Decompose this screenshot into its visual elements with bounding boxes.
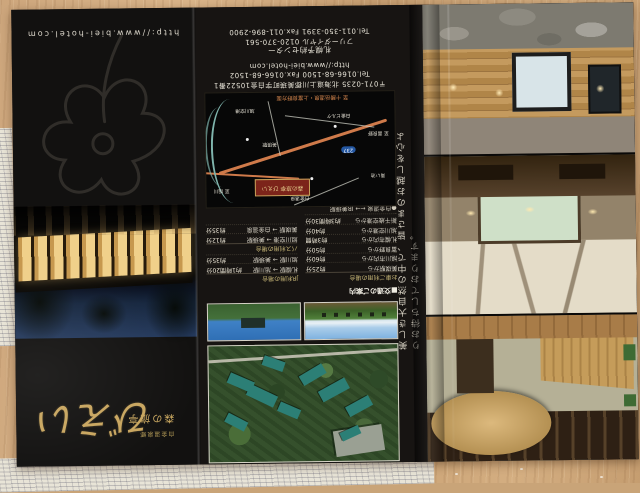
map-dot bbox=[334, 125, 337, 128]
bath-window-small bbox=[588, 64, 622, 113]
route-237-badge: 237 bbox=[341, 146, 356, 153]
photo-field-landscape bbox=[304, 301, 398, 340]
map-label: 白金ビルケ bbox=[327, 112, 351, 119]
table-silhouette bbox=[458, 165, 513, 180]
address-line: 〒071-0235 北海道上川郡美瑛町字白金10522番1 bbox=[202, 78, 397, 90]
brochure-info-panel: 美しき大自然の中で、皆さまのお越しを心よりお待ちしております。 bbox=[193, 5, 428, 465]
map-label: 至 旭川 bbox=[213, 188, 229, 195]
lobby-ceiling bbox=[425, 240, 637, 315]
bath-window bbox=[512, 52, 571, 112]
access-row: 旭川空港 → 美瑛駅約12分 bbox=[206, 233, 298, 244]
access-row: 札幌駅 → 旭川駅約1時間20分 bbox=[206, 263, 298, 274]
map-label: 美瑛駅 bbox=[262, 141, 276, 148]
route-label: 旭川駅 → 美瑛駅 bbox=[253, 254, 298, 263]
table-silhouette bbox=[559, 164, 606, 179]
aerial-roof bbox=[224, 413, 248, 432]
dust-speck bbox=[455, 473, 458, 475]
window-greenery bbox=[623, 344, 635, 360]
map-dot bbox=[246, 138, 249, 141]
duration-value: 約25分 bbox=[306, 263, 326, 272]
access-row: 新千歳空港から約3時間30分 bbox=[305, 214, 397, 225]
route-label: 富良野から bbox=[367, 243, 397, 252]
photo-guestroom bbox=[426, 314, 639, 462]
access-row: 旭川駅 → 美瑛駅約35分 bbox=[206, 253, 298, 264]
map-label: 至 富良野 bbox=[368, 130, 389, 137]
contact-block: 〒071-0235 北海道上川郡美瑛町字白金10522番1 Tel.0166-6… bbox=[201, 25, 397, 89]
route-label: 旭川空港から bbox=[361, 224, 397, 233]
aerial-roof bbox=[227, 372, 255, 392]
dust-speck bbox=[520, 468, 523, 470]
small-photo-row bbox=[207, 301, 398, 341]
building-silhouette bbox=[241, 318, 265, 328]
access-section: ■交通のご案内 お車ご利用の場合 美瑛駅から約25分 旭川市内から約60分 富良… bbox=[206, 209, 398, 297]
photo-onsen-bath bbox=[422, 2, 635, 155]
map-label: 白金温泉 bbox=[290, 195, 309, 202]
access-map: 237 森の旅亭 びえい 白金温泉 青い池 白金ビルケ 美瑛駅 至 旭川 至 富… bbox=[204, 90, 396, 208]
wall-lamp bbox=[449, 83, 457, 91]
access-row: 美瑛駅から約25分 bbox=[306, 262, 398, 273]
jr-column-header: JR利用の場合 bbox=[206, 272, 298, 284]
duration-value: 約50分 bbox=[306, 244, 326, 253]
duration-value: 約3時間 bbox=[306, 235, 328, 244]
duration-value: 約35分 bbox=[206, 225, 226, 234]
access-transit-column: JR利用の場合 札幌駅 → 旭川駅約1時間20分 旭川駅 → 美瑛駅約35分 バ… bbox=[206, 215, 298, 285]
access-title: ■交通のご案内 bbox=[207, 285, 398, 297]
duration-value: 約35分 bbox=[206, 255, 226, 264]
route-label: 美瑛駅 → 白金温泉 bbox=[247, 224, 298, 233]
dust-speck bbox=[600, 476, 603, 478]
access-row: 札幌市内から約3時間 bbox=[305, 233, 397, 244]
duration-value: 約3時間30分 bbox=[305, 215, 341, 224]
wood-floor bbox=[426, 314, 637, 340]
stone-bath bbox=[422, 2, 634, 50]
aerial-road bbox=[209, 348, 398, 363]
flower-sketch bbox=[20, 31, 194, 223]
duration-value: 約60分 bbox=[306, 254, 326, 263]
route-label: 旭川空港 → 美瑛駅 bbox=[247, 234, 298, 243]
brochure-gallery-panel bbox=[422, 2, 639, 462]
photographed-scene: 白金温泉郷 森の旅亭 びえい bbox=[0, 0, 640, 483]
duration-value: 約40分 bbox=[305, 225, 325, 234]
access-row: 旭川市内から約60分 bbox=[306, 252, 398, 263]
photo-lobby bbox=[424, 154, 637, 315]
route-label: 札幌市内から bbox=[361, 234, 397, 243]
aerial-roof bbox=[318, 377, 350, 402]
aerial-roof bbox=[345, 395, 373, 417]
duration-value: 約12分 bbox=[206, 234, 226, 243]
brochure-cover-panel: 白金温泉郷 森の旅亭 びえい bbox=[11, 8, 199, 467]
map-hotel-marker: 森の旅亭 びえい bbox=[255, 179, 310, 197]
tree-silhouette bbox=[81, 293, 127, 334]
access-row: 美瑛駅 → 白金温泉約35分 bbox=[206, 223, 298, 234]
aerial-roof bbox=[277, 401, 301, 419]
upside-down-brochure: 白金温泉郷 森の旅亭 びえい bbox=[11, 2, 639, 467]
route-label: 美瑛駅から bbox=[367, 263, 397, 272]
access-row: 旭川空港から約40分 bbox=[305, 223, 397, 234]
car-column-header: お車ご利用の場合 bbox=[306, 271, 398, 283]
downlight bbox=[524, 206, 534, 212]
map-river bbox=[204, 107, 237, 187]
duration-value: 約1時間20分 bbox=[206, 264, 242, 273]
access-row: 富良野から約50分 bbox=[306, 242, 398, 253]
downlight bbox=[465, 210, 475, 216]
window-greenery bbox=[624, 394, 636, 406]
closet-door bbox=[456, 332, 495, 393]
map-dot bbox=[310, 177, 313, 180]
map-label: 旭川空港 bbox=[235, 108, 254, 115]
hotel-logo: 白金温泉郷 森の旅亭 びえい bbox=[30, 377, 181, 451]
hotel-logo-script: びえい bbox=[38, 387, 153, 450]
distant-trees bbox=[322, 312, 386, 317]
photo-night-exterior bbox=[14, 205, 198, 339]
map-label: 青い池 bbox=[371, 172, 385, 179]
lobby-window bbox=[478, 190, 582, 245]
aerial-roof bbox=[299, 363, 327, 386]
access-car-column: お車ご利用の場合 美瑛駅から約25分 旭川市内から約60分 富良野から約50分 … bbox=[305, 214, 397, 284]
route-label: 札幌駅 → 旭川駅 bbox=[253, 264, 298, 273]
photo-exterior-building bbox=[207, 302, 301, 341]
route-label: 新千歳空港から bbox=[355, 215, 397, 224]
route-label: 旭川市内から bbox=[361, 253, 397, 262]
photo-aerial-view bbox=[207, 343, 399, 463]
map-caption: 至 十勝岳温泉・上富良野方面 bbox=[276, 94, 348, 103]
bus-column-header: バス利用の場合 bbox=[206, 242, 298, 254]
